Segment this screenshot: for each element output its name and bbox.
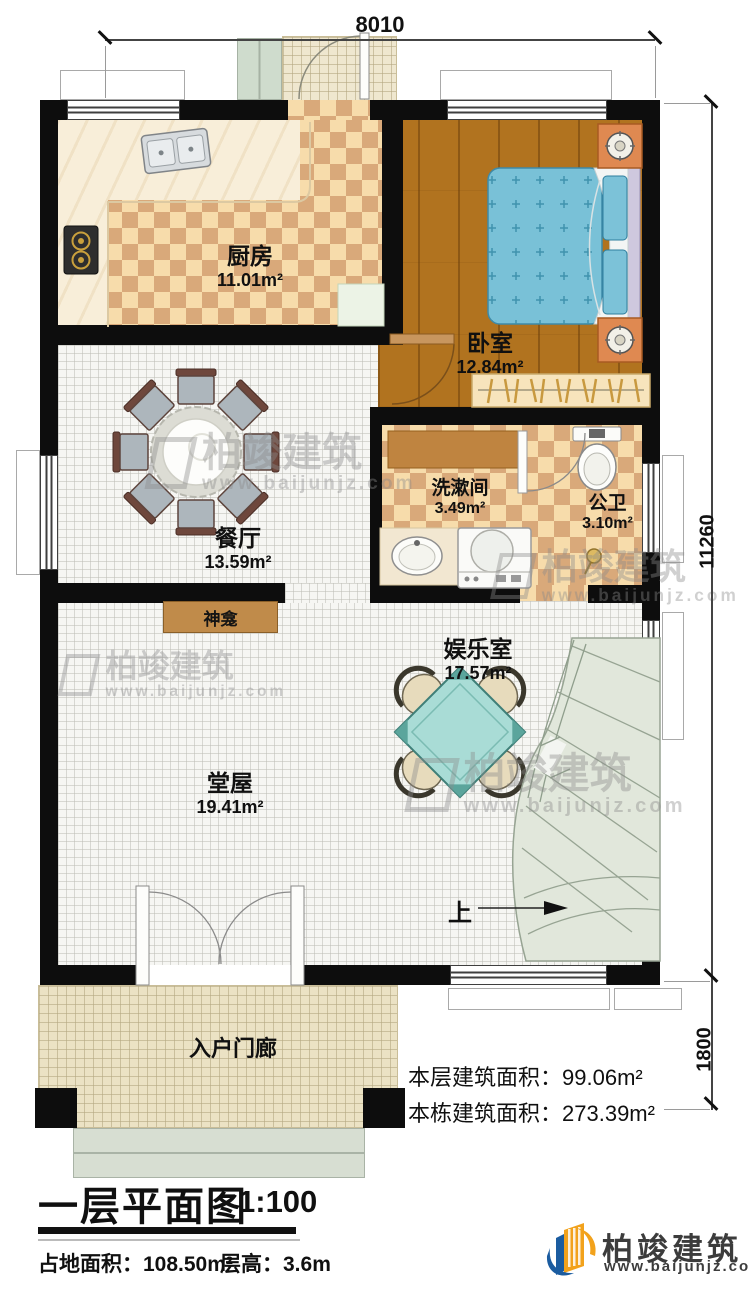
window-sill bbox=[448, 988, 610, 1010]
floor-area-line: 本层建筑面积：99.06m² bbox=[408, 1060, 643, 1092]
page-title: 一层平面图 bbox=[38, 1174, 248, 1232]
wall bbox=[607, 965, 660, 985]
wall bbox=[304, 965, 450, 985]
extension-line bbox=[664, 103, 710, 104]
wall bbox=[370, 407, 642, 425]
title-rule-thin bbox=[38, 1239, 300, 1241]
wall bbox=[40, 100, 58, 455]
room-label-toilet: 公卫 3.10m² bbox=[560, 493, 655, 534]
porch-column bbox=[35, 1088, 77, 1128]
wall bbox=[40, 570, 58, 985]
extension-line bbox=[105, 46, 106, 98]
wall bbox=[370, 100, 447, 120]
watermark-logo-icon bbox=[404, 758, 459, 812]
watermark: 柏竣建筑www.baijunjz.com bbox=[62, 650, 286, 700]
room-label-entertainment: 娱乐室 17.57m² bbox=[408, 636, 548, 684]
room-label-kitchen: 厨房 11.01m² bbox=[190, 243, 310, 291]
floor-area-value: 99.06m² bbox=[562, 1065, 643, 1090]
shrine: 神龛 bbox=[163, 601, 278, 633]
building-area-label: 本栋建筑面积： bbox=[408, 1101, 562, 1126]
wall bbox=[180, 100, 288, 120]
stairs-up-label: 上 bbox=[448, 893, 472, 928]
extension-line bbox=[655, 46, 656, 98]
logo-url: www.baijunjz.com bbox=[604, 1258, 750, 1275]
logo-icon bbox=[546, 1220, 598, 1280]
window-sill bbox=[662, 612, 684, 740]
window-sill bbox=[614, 988, 682, 1010]
floor-plan-page: 神龛 厨房 11.01m² 卧室 12.84m² 餐厅 13.59m² 洗漱间 … bbox=[0, 0, 750, 1290]
dimension-right-main: 11260 bbox=[697, 472, 720, 612]
drawing-scale: 1:100 bbox=[238, 1184, 317, 1220]
building-area-line: 本栋建筑面积：273.39m² bbox=[408, 1096, 655, 1128]
back-porch-panels bbox=[237, 38, 282, 100]
site-area-text: 占地面积：108.50m² bbox=[38, 1248, 233, 1278]
back-porch-floor bbox=[282, 36, 397, 102]
window bbox=[450, 965, 607, 985]
window bbox=[447, 100, 607, 120]
wall bbox=[40, 965, 136, 985]
window bbox=[40, 455, 58, 570]
window-sill bbox=[16, 450, 40, 575]
watermark: 柏竣建筑www.baijunjz.com bbox=[150, 432, 416, 494]
watermark-logo-icon bbox=[490, 553, 537, 599]
watermark-logo-icon bbox=[144, 437, 197, 489]
window-sill bbox=[60, 70, 185, 100]
title-rule-thick bbox=[38, 1227, 296, 1234]
room-label-hall: 堂屋 19.41m² bbox=[170, 770, 290, 818]
floor-height-text: 层高：3.6m bbox=[220, 1248, 331, 1278]
porch-column bbox=[363, 1088, 405, 1128]
dimension-top: 8010 bbox=[105, 12, 655, 38]
wall bbox=[642, 100, 660, 463]
shrine-label: 神龛 bbox=[204, 605, 238, 630]
room-label-dining: 餐厅 13.59m² bbox=[178, 525, 298, 573]
dining-hall-opening bbox=[285, 583, 378, 603]
wall bbox=[382, 118, 403, 340]
window bbox=[67, 100, 180, 120]
room-label-porch: 入户门廊 bbox=[158, 1036, 308, 1062]
dimension-right-porch: 1800 bbox=[694, 990, 717, 1110]
porch-step bbox=[73, 1128, 365, 1153]
building-area-value: 273.39m² bbox=[562, 1101, 655, 1126]
floor-area-label: 本层建筑面积： bbox=[408, 1065, 562, 1090]
watermark: 柏竣建筑www.baijunjz.com bbox=[410, 752, 686, 817]
window-sill bbox=[440, 70, 612, 100]
dimension-line-top bbox=[105, 39, 655, 41]
extension-line bbox=[664, 981, 710, 982]
wall bbox=[58, 325, 403, 345]
watermark-logo-icon bbox=[58, 654, 100, 696]
room-label-washroom: 洗漱间 3.49m² bbox=[405, 478, 515, 519]
wall bbox=[58, 583, 285, 603]
kitchen-door-opening bbox=[288, 100, 370, 120]
room-label-bedroom: 卧室 12.84m² bbox=[430, 330, 550, 378]
window bbox=[642, 620, 660, 733]
